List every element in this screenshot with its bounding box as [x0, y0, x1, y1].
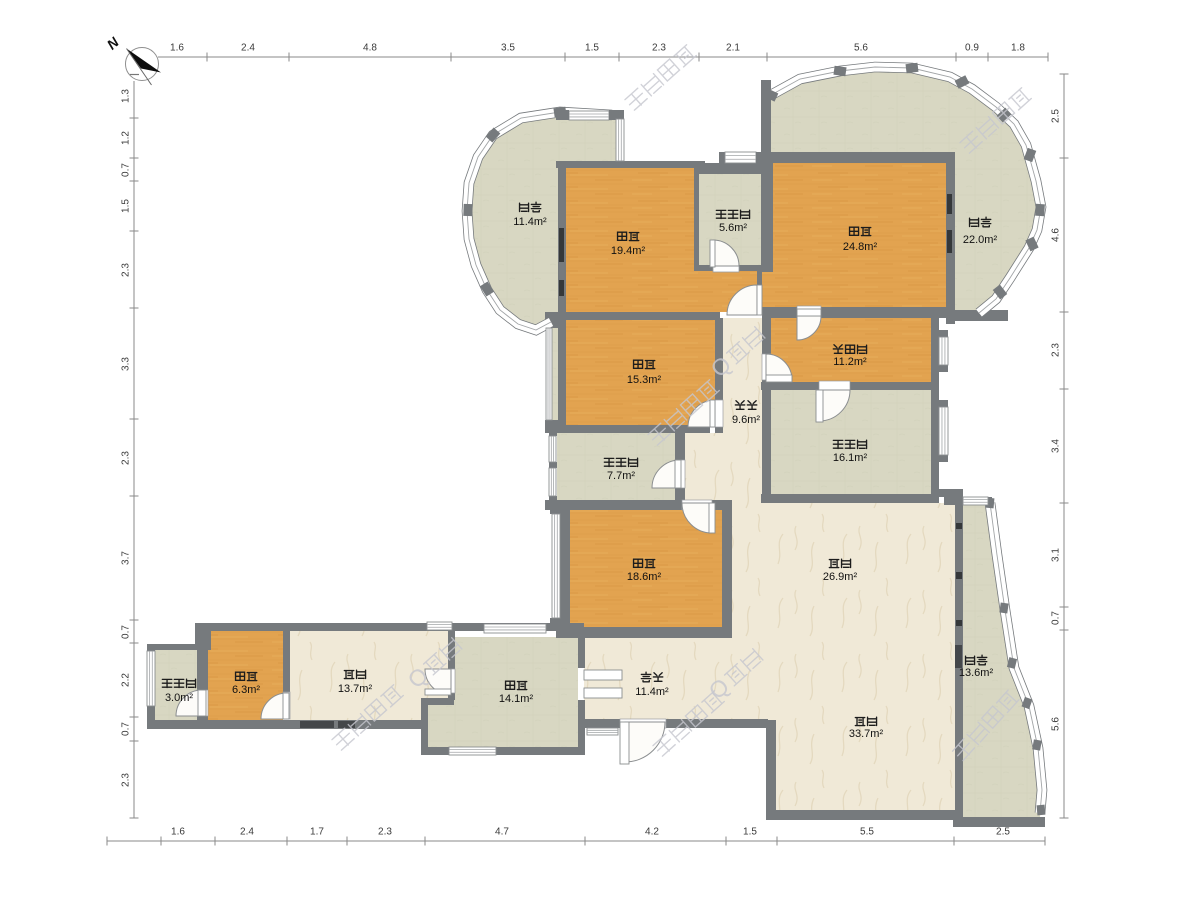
svg-text:0.7: 0.7 — [121, 625, 132, 639]
svg-text:3.3: 3.3 — [121, 357, 132, 371]
svg-text:2.5: 2.5 — [996, 827, 1010, 838]
svg-text:33.7m²: 33.7m² — [849, 728, 884, 740]
svg-text:3.4: 3.4 — [1051, 439, 1062, 453]
svg-text:2.3: 2.3 — [121, 773, 132, 787]
svg-text:5.6: 5.6 — [1051, 717, 1062, 731]
svg-text:7.7m²: 7.7m² — [607, 470, 635, 482]
svg-text:5.5: 5.5 — [860, 827, 874, 838]
svg-text:4.7: 4.7 — [495, 827, 509, 838]
svg-text:2.1: 2.1 — [726, 43, 740, 54]
svg-text:1.5: 1.5 — [743, 827, 757, 838]
svg-text:1.7: 1.7 — [310, 827, 324, 838]
svg-text:2.3: 2.3 — [1051, 343, 1062, 357]
svg-text:4.6: 4.6 — [1051, 228, 1062, 242]
svg-text:2.3: 2.3 — [121, 263, 132, 277]
svg-text:1.5: 1.5 — [585, 43, 599, 54]
svg-text:22.0m²: 22.0m² — [963, 234, 998, 246]
svg-text:14.1m²: 14.1m² — [499, 693, 534, 705]
svg-text:2.4: 2.4 — [241, 43, 255, 54]
svg-text:26.9m²: 26.9m² — [823, 571, 858, 583]
svg-text:1.8: 1.8 — [1011, 43, 1025, 54]
svg-text:2.3: 2.3 — [378, 827, 392, 838]
svg-text:3.7: 3.7 — [121, 551, 132, 565]
svg-text:2.3: 2.3 — [652, 43, 666, 54]
svg-text:3.5: 3.5 — [501, 43, 515, 54]
svg-text:11.4m²: 11.4m² — [513, 216, 547, 228]
svg-text:3.0m²: 3.0m² — [165, 692, 193, 704]
svg-text:1.6: 1.6 — [170, 43, 184, 54]
svg-text:16.1m²: 16.1m² — [833, 452, 868, 464]
svg-text:2.3: 2.3 — [121, 451, 132, 465]
svg-text:3.1: 3.1 — [1051, 548, 1062, 562]
svg-text:1.6: 1.6 — [171, 827, 185, 838]
svg-text:1.3: 1.3 — [121, 89, 132, 103]
svg-text:1.5: 1.5 — [121, 199, 132, 213]
svg-text:6.3m²: 6.3m² — [232, 684, 260, 696]
svg-text:2.4: 2.4 — [240, 827, 254, 838]
svg-text:4.2: 4.2 — [645, 827, 659, 838]
svg-text:18.6m²: 18.6m² — [627, 571, 662, 583]
svg-text:2.5: 2.5 — [1051, 109, 1062, 123]
svg-text:0.7: 0.7 — [121, 163, 132, 177]
svg-text:4.8: 4.8 — [363, 43, 377, 54]
svg-text:5.6: 5.6 — [854, 43, 868, 54]
svg-text:9.6m²: 9.6m² — [732, 414, 760, 426]
svg-text:5.6m²: 5.6m² — [719, 222, 747, 234]
svg-text:0.7: 0.7 — [1051, 611, 1062, 625]
svg-text:2.2: 2.2 — [121, 673, 132, 687]
svg-text:11.4m²: 11.4m² — [635, 686, 669, 698]
svg-text:0.7: 0.7 — [121, 722, 132, 736]
svg-text:15.3m²: 15.3m² — [627, 374, 662, 386]
svg-text:1.2: 1.2 — [121, 131, 132, 145]
svg-text:24.8m²: 24.8m² — [843, 241, 878, 253]
svg-text:13.7m²: 13.7m² — [338, 683, 373, 695]
svg-text:0.9: 0.9 — [965, 43, 979, 54]
svg-text:13.6m²: 13.6m² — [959, 667, 994, 679]
svg-text:19.4m²: 19.4m² — [611, 245, 646, 257]
svg-text:11.2m²: 11.2m² — [833, 356, 867, 368]
